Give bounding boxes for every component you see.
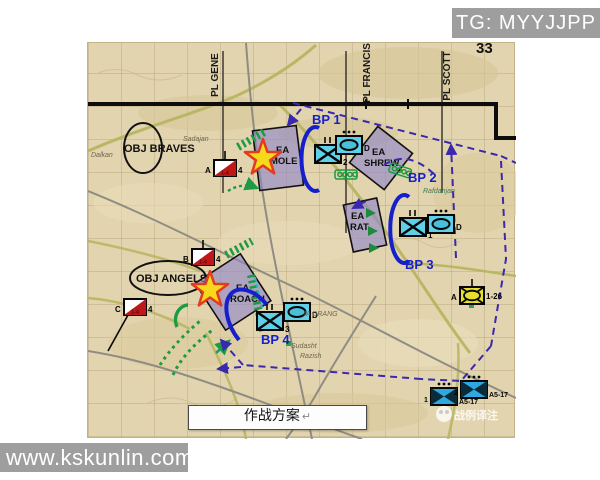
guidon-b-letter: B — [183, 255, 189, 264]
guidon-a: 1-4 A 4 — [205, 151, 243, 177]
company-dots-icon — [468, 376, 481, 379]
place-sadajan: Sadajan — [183, 136, 209, 143]
guidon-c-inner: 1-4 — [131, 310, 140, 316]
tf1-designation: A5-17 — [459, 399, 478, 406]
guidon-a-letter: A — [205, 166, 211, 175]
logo-text: 战例译注 — [454, 408, 498, 422]
tf2-number: 2 — [454, 390, 458, 397]
place-razish: Razish — [300, 353, 322, 360]
tg-badge: TG: MYYJJPP — [452, 8, 600, 38]
place-ia-drang: IA DRANG — [304, 311, 338, 318]
mech-unit-3-label: 3 — [285, 325, 290, 334]
page-number: 33 — [476, 40, 506, 57]
guidon-b-inner: 1-4 — [199, 260, 208, 266]
guidon-c-number: 4 — [148, 305, 153, 314]
caption-text: 作战方案 — [244, 409, 300, 424]
map-canvas: PL GENE PL FRANCIS PL SCOTT OBJ BRAVES O… — [88, 43, 516, 439]
bp4-label: BP 4 — [261, 332, 290, 347]
cavalry-unit: A 1-26 — [451, 279, 503, 304]
logo-watermark: 战例译注 — [436, 406, 498, 422]
bp3-label: BP 3 — [405, 257, 434, 272]
cavalry-unit-letter: A — [451, 293, 457, 302]
ea-rat-label1: EA — [351, 211, 364, 222]
company-dots-icon — [435, 210, 448, 213]
phase-line-gene-label: PL GENE — [210, 53, 221, 97]
ea-rat-label2: RAT — [350, 222, 369, 233]
armor-unit-d2-label: D — [456, 223, 462, 232]
cavalry-unit-number: 1-26 — [486, 292, 503, 301]
company-dots-icon — [343, 131, 356, 134]
armor-unit-d1-label: D — [364, 144, 370, 153]
guidon-b-number: 4 — [216, 255, 221, 264]
ea-shrew-label1: EA — [372, 147, 385, 158]
bp2-label: BP 2 — [408, 170, 437, 185]
battalion-echelon-icon — [267, 304, 272, 310]
place-rafdanjan: Rafdanjan — [423, 188, 455, 195]
bp1-label: BP 1 — [312, 112, 341, 127]
objective-angels: OBJ ANGELS — [130, 261, 207, 295]
guidon-a-inner: 1-4 — [221, 171, 230, 177]
company-dots-icon — [438, 383, 451, 386]
task-force-unit-2: 2 A5-17 — [454, 376, 508, 399]
return-mark: ↵ — [302, 411, 311, 423]
tactical-map: PL GENE PL FRANCIS PL SCOTT OBJ BRAVES O… — [87, 42, 515, 438]
caption-box: 作战方案↵ — [188, 405, 367, 430]
watermark-bar: www.kskunlin.com — [0, 443, 188, 472]
tf1-number: 1 — [424, 397, 428, 404]
screenshot: TG: MYYJJPP — [0, 0, 600, 480]
green-dashed-arrow — [228, 186, 257, 191]
objective-braves: OBJ BRAVES — [124, 123, 195, 173]
company-dots-icon — [291, 298, 304, 301]
place-dalkan: Dalkan — [91, 152, 113, 159]
objective-braves-label: OBJ BRAVES — [124, 143, 195, 155]
battalion-echelon-icon — [410, 210, 415, 216]
guidon-a-number: 4 — [238, 166, 243, 175]
phase-line-francis-label: PL FRANCIS — [362, 43, 373, 103]
guidon-c-letter: C — [115, 305, 121, 314]
mech-unit-2-label: 2 — [343, 158, 348, 167]
place-sudasht: Sudasht — [291, 343, 318, 350]
phase-line-scott-label: PL SCOTT — [442, 51, 453, 100]
tf2-designation: A5-17 — [489, 392, 508, 399]
